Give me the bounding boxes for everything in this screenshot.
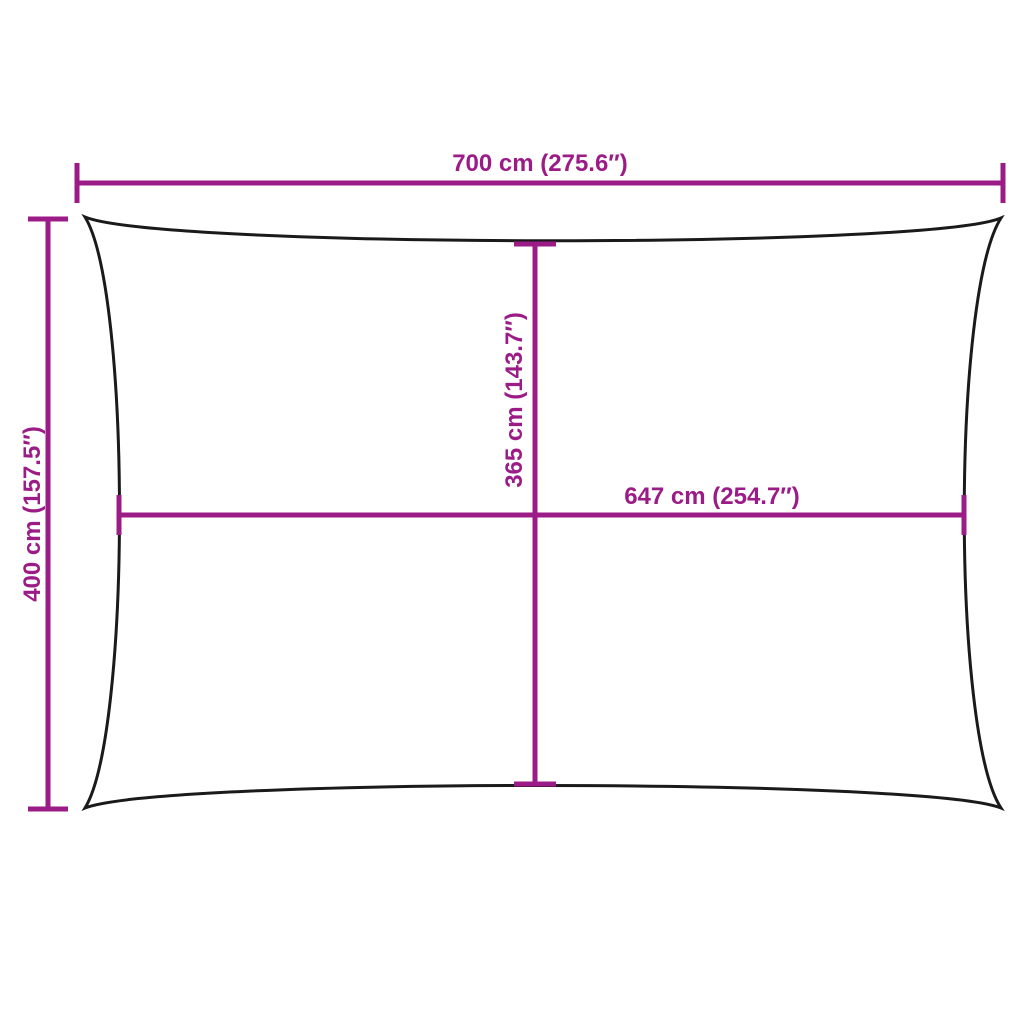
dimension-label-overall-height: 400 cm (157.5″) — [19, 426, 46, 602]
dimension-label-overall-width: 700 cm (275.6″) — [452, 150, 628, 177]
dimension-diagram: 700 cm (275.6″) 400 cm (157.5″) 365 cm (… — [0, 0, 1024, 1024]
dimension-label-center-height: 365 cm (143.7″) — [501, 312, 528, 488]
diagram-canvas: 700 cm (275.6″) 400 cm (157.5″) 365 cm (… — [0, 0, 1024, 1024]
dimension-label-center-width: 647 cm (254.7″) — [624, 483, 800, 510]
